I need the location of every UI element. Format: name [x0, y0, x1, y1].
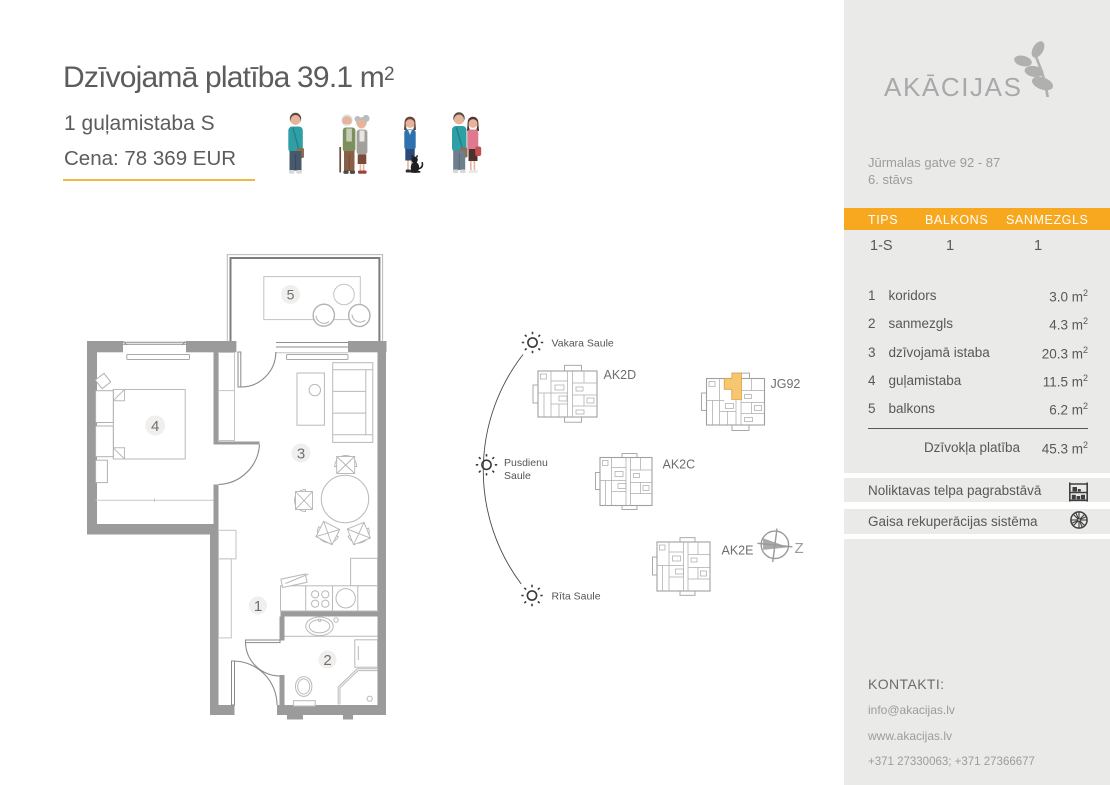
svg-text:AK2D: AK2D: [604, 368, 637, 382]
svg-text:AK2E: AK2E: [722, 544, 754, 558]
svg-text:1: 1: [254, 598, 262, 615]
svg-text:4: 4: [151, 418, 159, 435]
svg-text:Saule: Saule: [504, 470, 531, 482]
svg-text:Rīta Saule: Rīta Saule: [552, 591, 601, 603]
svg-text:AK2C: AK2C: [663, 458, 696, 472]
svg-text:5: 5: [287, 287, 295, 303]
svg-text:2: 2: [323, 652, 331, 669]
svg-text:3: 3: [297, 446, 305, 463]
svg-text:JG92: JG92: [771, 377, 801, 391]
svg-text:Z: Z: [795, 540, 804, 557]
svg-text:Pusdienu: Pusdienu: [504, 457, 548, 469]
svg-text:Vakara Saule: Vakara Saule: [552, 338, 614, 350]
